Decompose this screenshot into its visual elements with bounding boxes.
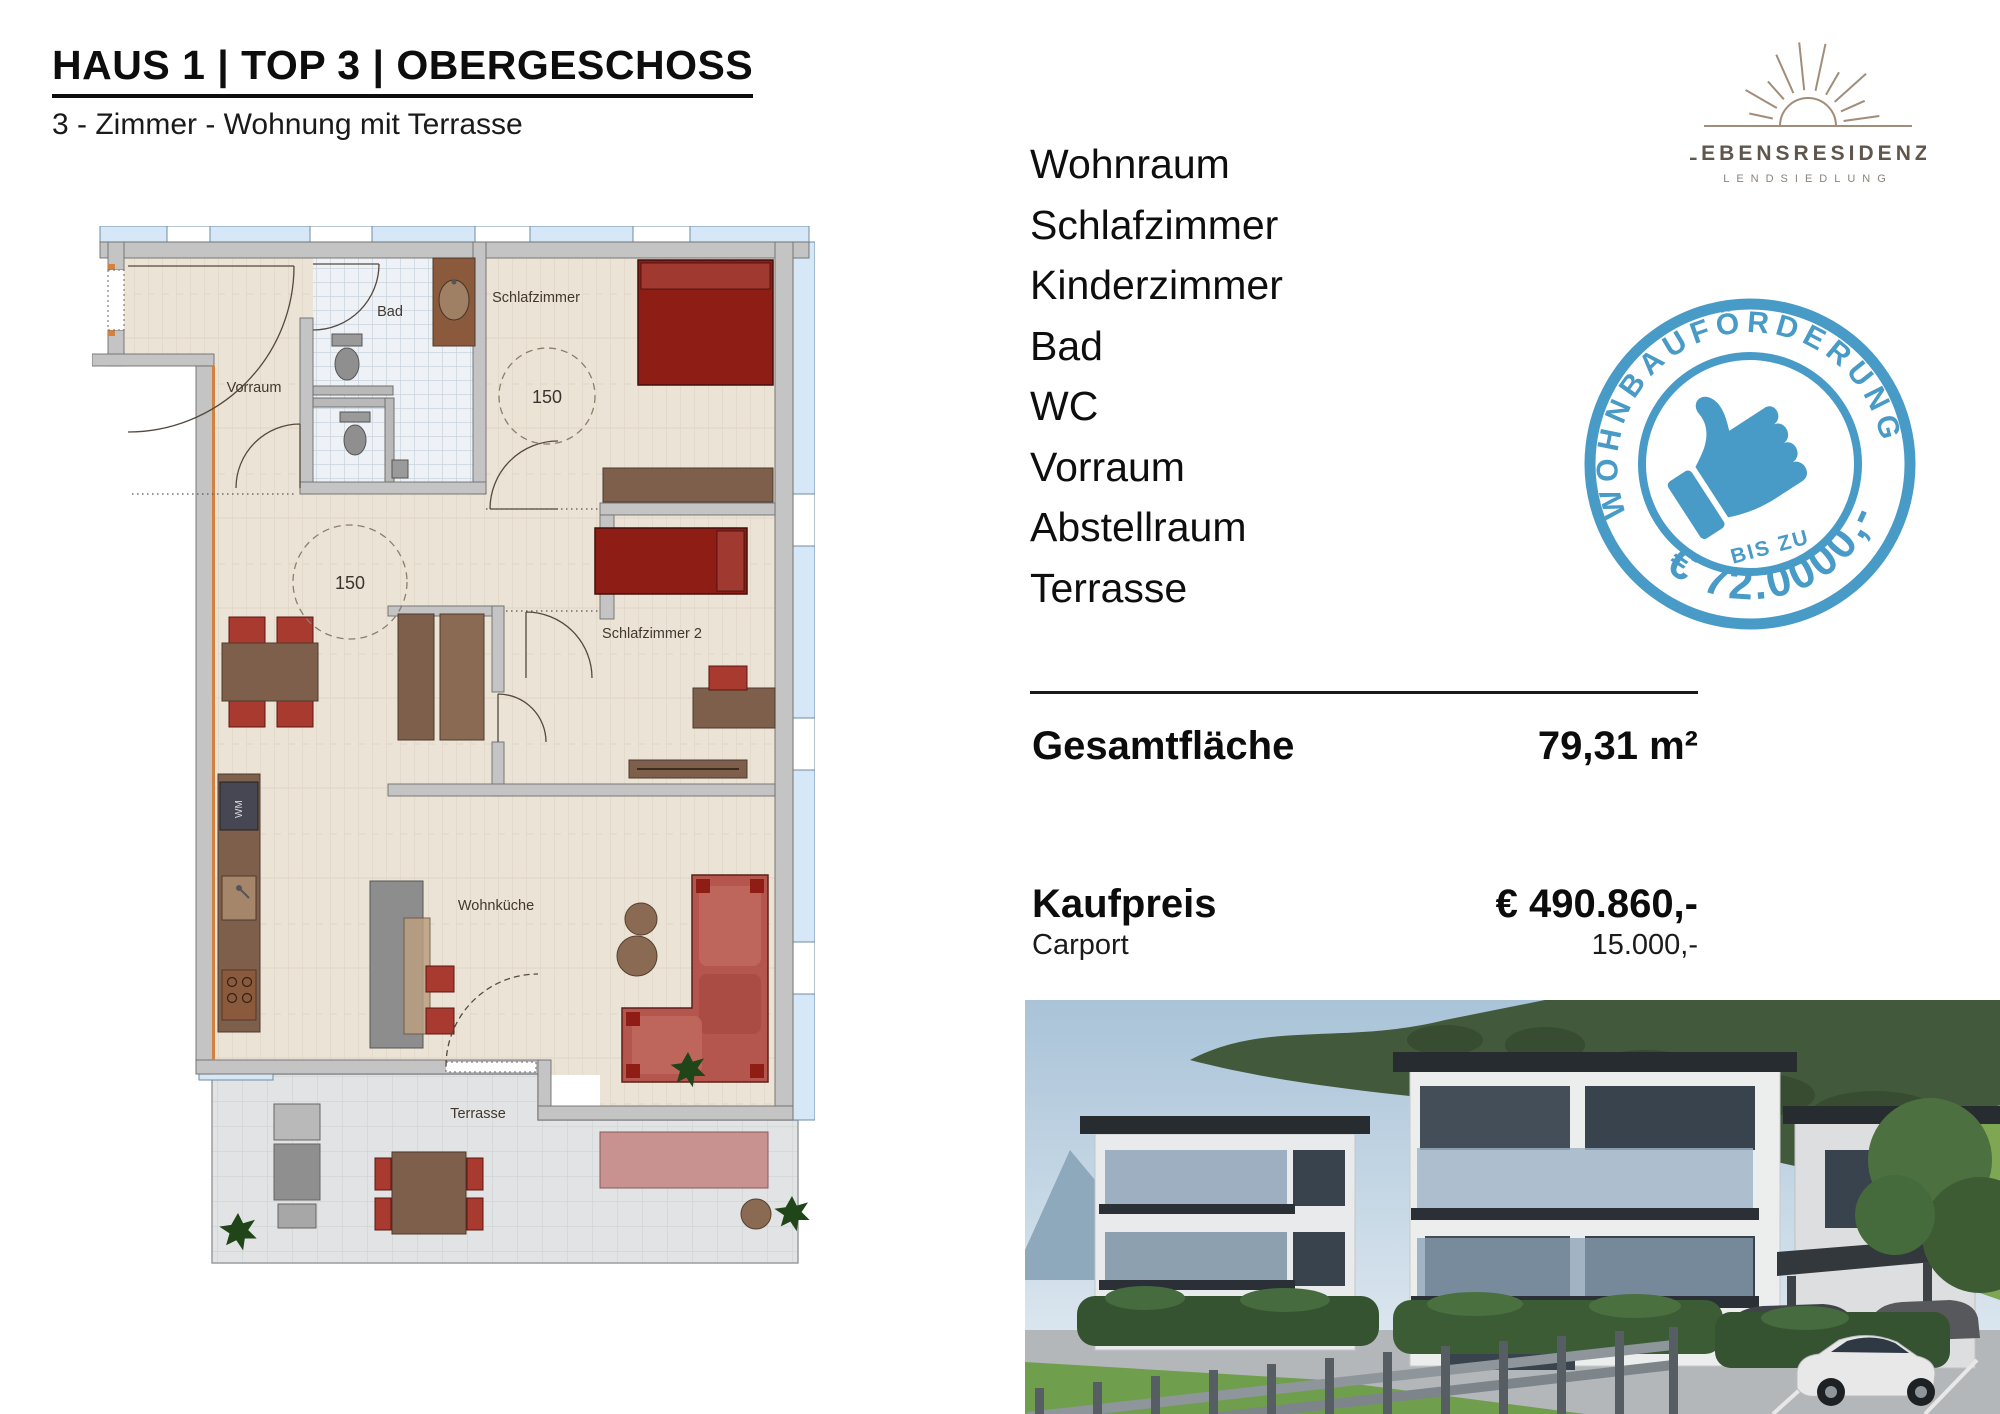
room-list-item: WC (1030, 376, 1283, 437)
company-logo: LEBENSRESIDENZ LENDSIEDLUNG (1690, 30, 1926, 190)
page-title: HAUS 1 | TOP 3 | OBERGESCHOSS (52, 42, 753, 98)
carport-row: Carport 15.000,- (1032, 929, 1698, 962)
logo-name: LEBENSRESIDENZ (1690, 142, 1926, 165)
turning-radius-label: 150 (335, 573, 365, 593)
room-label-vorraum: Vorraum (227, 380, 282, 396)
floor-plan: WM (92, 226, 815, 1266)
room-list-item: Vorraum (1030, 437, 1283, 498)
purchase-price-row: Kaufpreis € 490.860,- (1032, 882, 1698, 927)
purchase-price-value: € 490.860,- (1496, 882, 1698, 927)
divider-line (1030, 691, 1698, 694)
room-label-schlafzimmer2: Schlafzimmer 2 (602, 626, 702, 642)
room-label-bad: Bad (377, 304, 403, 320)
carport-value: 15.000,- (1592, 929, 1698, 962)
turning-radius-label: 150 (532, 387, 562, 407)
room-list-item: Schlafzimmer (1030, 195, 1283, 256)
total-area-label: Gesamtfläche (1032, 724, 1294, 769)
room-list: Wohnraum Schlafzimmer Kinderzimmer Bad W… (1030, 134, 1283, 618)
brochure-page: HAUS 1 | TOP 3 | OBERGESCHOSS 3 - Zimmer… (0, 0, 2000, 1414)
building-photo-illustration (1025, 1000, 2000, 1414)
room-list-item: Bad (1030, 316, 1283, 377)
sun-icon (1704, 42, 1912, 126)
room-list-item: Abstellraum (1030, 497, 1283, 558)
room-label-terrasse: Terrasse (450, 1106, 506, 1122)
carport-label: Carport (1032, 929, 1129, 962)
total-area-row: Gesamtfläche 79,31 m² (1032, 724, 1698, 769)
room-list-item: Terrasse (1030, 558, 1283, 619)
floor-plan-drawing: WM (92, 226, 815, 1266)
purchase-price-label: Kaufpreis (1032, 882, 1217, 927)
total-area-value: 79,31 m² (1538, 724, 1698, 769)
storage-shelves (398, 614, 484, 740)
header: HAUS 1 | TOP 3 | OBERGESCHOSS 3 - Zimmer… (52, 42, 753, 142)
building-rendering (1025, 1000, 2000, 1414)
room-label-schlafzimmer: Schlafzimmer (492, 290, 580, 306)
stamp-icon: WOHNBAUFÖRDERUNG € 72.0000,- BIS ZU (1578, 292, 1922, 636)
logo-tagline: LENDSIEDLUNG (1723, 173, 1893, 185)
room-label-wohnkueche: Wohnküche (458, 898, 534, 914)
sun-logo-icon: LEBENSRESIDENZ LENDSIEDLUNG (1690, 30, 1926, 190)
washing-machine-label: WM (234, 800, 245, 818)
page-subtitle: 3 - Zimmer - Wohnung mit Terrasse (52, 108, 753, 142)
subsidy-stamp: WOHNBAUFÖRDERUNG € 72.0000,- BIS ZU (1578, 292, 1922, 636)
room-list-item: Kinderzimmer (1030, 255, 1283, 316)
room-list-item: Wohnraum (1030, 134, 1283, 195)
